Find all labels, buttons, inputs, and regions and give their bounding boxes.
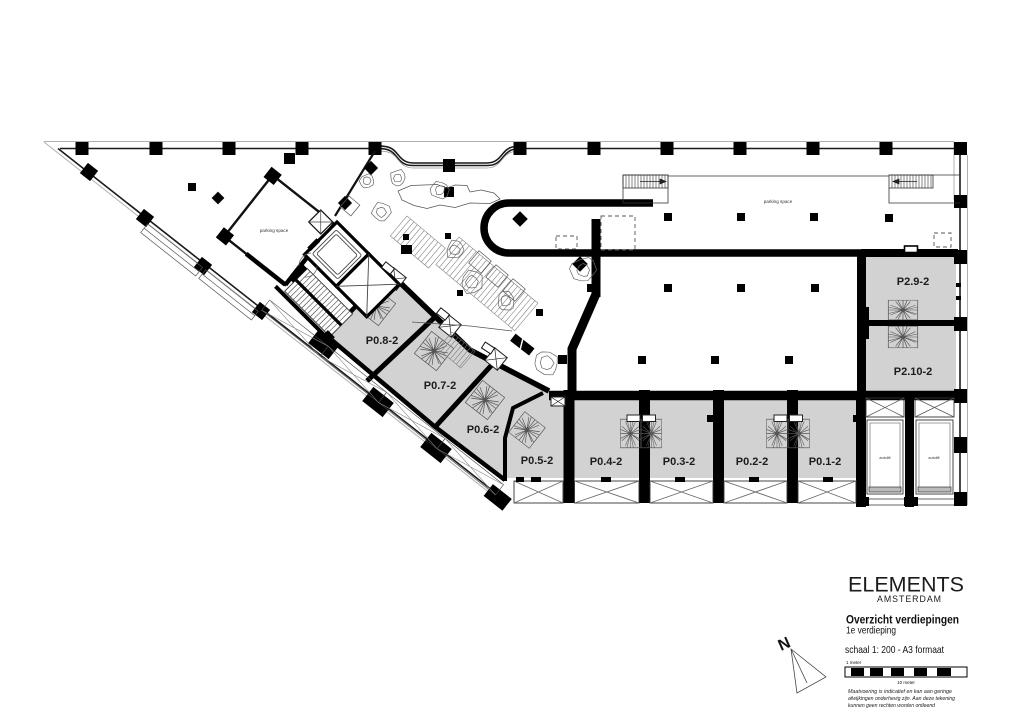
svg-text:P0.5-2: P0.5-2 [521,455,553,467]
svg-text:P0.6-2: P0.6-2 [467,424,499,436]
svg-text:parking space: parking space [260,228,289,233]
svg-text:afwijkingen onderhevig zijn. A: afwijkingen onderhevig zijn. Aan deze te… [848,696,956,702]
svg-text:Maatvoering is indicatief en k: Maatvoering is indicatief en kan aan ger… [848,689,953,695]
svg-text:P0.8-2: P0.8-2 [366,335,398,347]
svg-text:P0.3-2: P0.3-2 [663,456,695,468]
svg-text:AMSTERDAM: AMSTERDAM [877,594,941,604]
svg-text:autolift: autolift [879,456,891,460]
svg-text:P0.4-2: P0.4-2 [590,456,622,468]
svg-text:P2.9-2: P2.9-2 [897,276,929,288]
svg-text:parking space: parking space [764,199,793,204]
svg-text:10 meter: 10 meter [897,680,915,685]
svg-text:1 meter: 1 meter [846,660,862,665]
svg-text:P0.7-2: P0.7-2 [424,380,456,392]
svg-text:P0.1-2: P0.1-2 [809,456,841,468]
svg-text:schaal 1: 200 - A3 formaat: schaal 1: 200 - A3 formaat [845,644,944,656]
svg-text:P0.2-2: P0.2-2 [736,456,768,468]
svg-text:ELEMENTS: ELEMENTS [848,573,964,597]
svg-text:1e verdieping: 1e verdieping [846,626,896,637]
svg-text:P2.10-2: P2.10-2 [894,366,933,378]
svg-text:kunnen geen rechten worden ont: kunnen geen rechten worden ontleend [848,703,936,709]
svg-text:autolift: autolift [928,456,940,460]
